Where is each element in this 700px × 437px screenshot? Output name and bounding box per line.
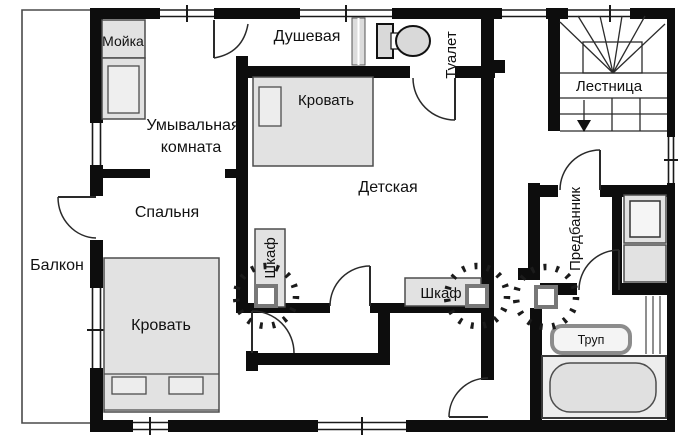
wall-washroom-bedroom-right [225, 169, 248, 178]
wall-stub-toilet [494, 60, 505, 73]
room-label-toilet: Туалет [443, 31, 460, 79]
door-bedroom [252, 311, 294, 353]
door-hall-corridor [449, 378, 488, 417]
wall-vestibule-top-left [540, 185, 558, 197]
sensor-device-left [256, 286, 276, 306]
stairs-down-arrow [577, 100, 591, 132]
window-right [664, 137, 678, 183]
door-vestibule [560, 150, 600, 190]
wall-shower-toilet-bottom [248, 66, 410, 78]
exterior-wall-right [667, 8, 675, 432]
wall-hall-horizontal [246, 353, 390, 365]
wall-stairs-left [548, 8, 560, 131]
door-shower [214, 20, 248, 58]
furniture-label-bedroom-bed: Кровать [131, 317, 191, 334]
room-label-washroom-line2: комната [161, 139, 222, 156]
staircase [560, 16, 667, 132]
window-left-washroom [90, 123, 104, 165]
door-toilet [413, 78, 455, 120]
window-top-4 [568, 5, 630, 22]
room-label-vestibule: Предбанник [567, 187, 584, 271]
window-bottom-1 [133, 417, 168, 435]
wall-bath-top-right [619, 283, 667, 295]
furniture-label-sink: Мойка [102, 33, 144, 49]
window-left-bedroom [87, 288, 106, 368]
door-nursery [330, 266, 370, 306]
vestibule-cabinet-top [624, 195, 666, 243]
nursery-bed [253, 77, 373, 166]
window-top-2 [300, 5, 392, 22]
shower-partition [352, 18, 365, 65]
room-label-staircase: Лестница [576, 78, 643, 95]
furniture-label-wardrobe-right: Шкаф [420, 285, 461, 302]
wall-vestibule-closet [612, 185, 622, 295]
vestibule-cabinet-bottom [624, 245, 666, 282]
room-label-washroom-line1: Умывальная [146, 117, 239, 134]
window-top-1 [160, 5, 214, 22]
window-bottom-2 [318, 417, 406, 435]
balcony-outline [22, 10, 96, 423]
floor-plan: Балкон Умывальная комната Мойка Душевая … [0, 0, 700, 437]
room-label-nursery: Детская [358, 179, 417, 196]
window-top-3 [502, 8, 546, 20]
room-label-shower: Душевая [274, 28, 341, 45]
balcony-door-opening [90, 196, 104, 240]
wall-nursery-right [481, 8, 494, 380]
room-label-balcony: Балкон [30, 257, 84, 274]
sensor-device-right [536, 287, 556, 307]
bathroom-shaft [646, 296, 660, 354]
toilet-fixture [377, 24, 430, 58]
label-corpse-mat: Труп [578, 333, 605, 347]
furniture-label-wardrobe-left: Шкаф [262, 237, 279, 278]
wall-vestibule-left-upper [528, 183, 540, 280]
bathtub [542, 356, 666, 418]
wall-hall-cap [246, 351, 258, 371]
bedroom-bed [104, 258, 219, 412]
sensor-device-middle [467, 286, 487, 306]
room-label-bedroom: Спальня [135, 204, 199, 221]
wall-washroom-bedroom-left [100, 169, 150, 178]
furniture-label-nursery-bed: Кровать [298, 92, 354, 109]
